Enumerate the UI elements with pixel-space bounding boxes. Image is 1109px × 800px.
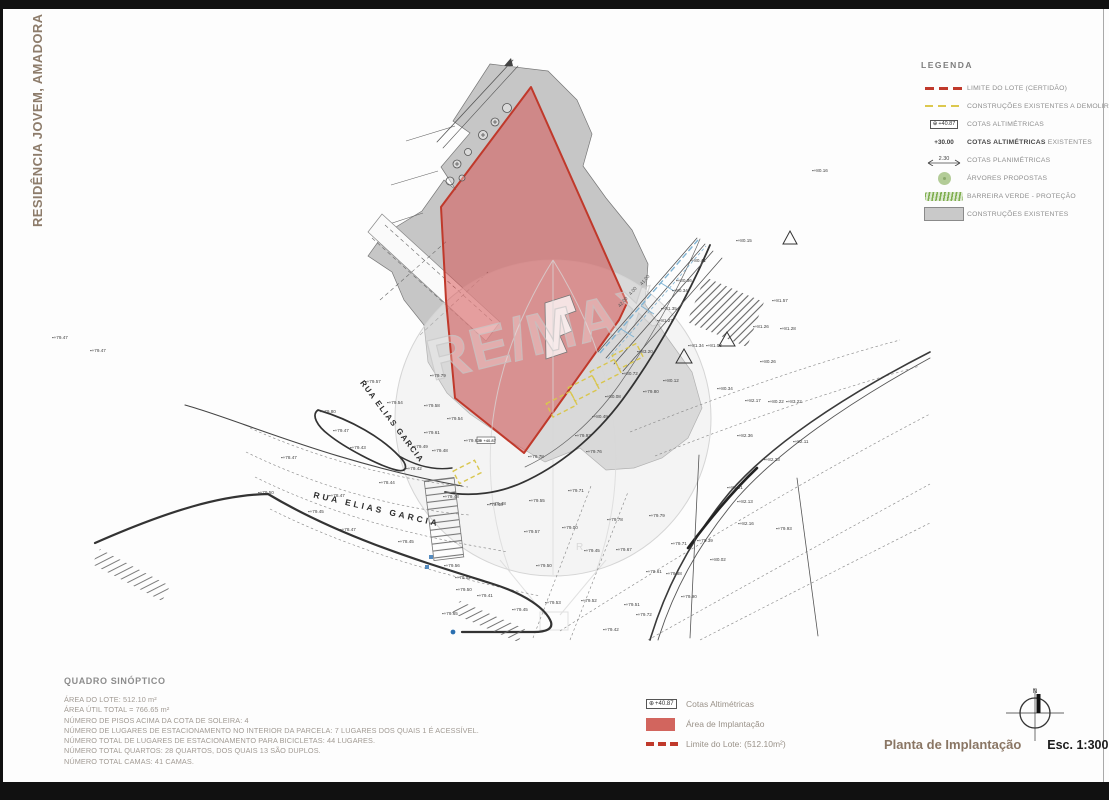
spot-elevation: ▪+79.65: [442, 611, 458, 616]
spot-elevation: ▪+82.36: [737, 433, 753, 438]
spot-elevation: ▪+82.11: [793, 439, 809, 444]
spot-elevation: ▪+79.45: [512, 607, 528, 612]
svg-text:2.30: 2.30: [939, 156, 950, 162]
spot-elevation: ▪+79.48: [490, 501, 506, 506]
spot-elevation: ▪+79.61: [424, 430, 440, 435]
spot-elevation: ▪+81.26: [753, 324, 769, 329]
spot-elevation: ▪+79.55: [529, 498, 545, 503]
spot-elevation: ▪+83.22: [786, 399, 802, 404]
spot-elevation: ▪+79.00: [562, 525, 578, 530]
spot-elevation: ▪+79.80: [643, 389, 659, 394]
spot-elevation: ▪+80.26: [760, 359, 776, 364]
spot-elevation: ▪+79.50: [456, 587, 472, 592]
scale-label: Esc. 1:300: [1047, 738, 1108, 752]
spot-elevation: ▪+79.78: [528, 454, 544, 459]
footer-legend-item-area: Área de Implantação: [646, 714, 786, 734]
spot-elevation: ▪+79.78: [607, 517, 623, 522]
utility-blue-mark: [425, 565, 429, 569]
green-barrier-symbol: [925, 192, 963, 201]
legend-item-demolish: CONSTRUÇÕES EXISTENTES A DEMOLIR: [921, 97, 1099, 115]
drawing-title: Planta de Implantação: [884, 737, 1021, 752]
spot-elevation: ▪+79.52: [455, 575, 471, 580]
spot-elevation: ▪+79.76: [586, 449, 602, 454]
legend-item-planimetric: 2.30 COTAS PLANIMÉTRICAS: [921, 151, 1099, 169]
target-icon: ⊕: [649, 700, 654, 708]
spot-elevation: ▪+82.16: [738, 521, 754, 526]
spot-elevation: ▪+81.35: [661, 306, 677, 311]
red-dash-symbol: [646, 742, 679, 746]
spot-elevation: ▪+80.34: [717, 386, 733, 391]
spot-elevation: ▪+79.92: [575, 433, 591, 438]
utility-blue-mark: [429, 555, 433, 559]
spot-elevation: ▪+80.49: [592, 414, 608, 419]
tree-symbol: [938, 172, 951, 185]
utility-blue-dot: [451, 630, 456, 635]
synoptic-line: NÚMERO TOTAL QUARTOS: 28 QUARTOS, DOS QU…: [64, 746, 534, 756]
spot-elevation: ▪+79.39: [697, 538, 713, 543]
red-fill-symbol: [646, 718, 675, 731]
spot-elevation: ▪+81.34: [688, 343, 704, 348]
spot-elevation: ▪+79.79: [430, 373, 446, 378]
spot-elevation: ▪+79.93: [776, 526, 792, 531]
spot-elevation: ▪+79.42: [603, 627, 619, 632]
spot-elevation: ▪+80.08: [605, 394, 621, 399]
spot-elevation: ▪+82.17: [745, 398, 761, 403]
spot-elevation: ▪+80.34: [672, 288, 688, 293]
spot-elevation: ▪+79.45: [584, 548, 600, 553]
spot-elevation: ▪+79.79: [649, 513, 665, 518]
footer-legend-item-cotas: ⊕+40.87 Cotas Altimétricas: [646, 694, 786, 714]
red-dash-symbol: [925, 87, 963, 90]
spot-elevation: ▪+79.48: [432, 448, 448, 453]
synoptic-table: QUADRO SINÓPTICO ÁREA DO LOTE: 512.10 m²…: [64, 676, 534, 767]
spot-elevation: ▪+79.54: [447, 416, 463, 421]
viewer-bottom-border: [0, 782, 1109, 800]
spot-elevation: ▪+79.42: [406, 466, 422, 471]
spot-elevation: ▪+79.71: [671, 541, 687, 546]
spot-elevation: ▪+80.15: [736, 238, 752, 243]
legend-item-altimetric-existing: +30.00 COTAS ALTIMÉTRICAS EXISTENTES: [921, 133, 1099, 151]
spot-elevation: ▪+79.48: [443, 494, 459, 499]
existing-cota-symbol: +30.00: [934, 139, 953, 146]
project-title-vertical: RESIDÊNCIA JOVEM, AMADORA: [30, 52, 45, 227]
footer-legend: ⊕+40.87 Cotas Altimétricas Área de Impla…: [646, 694, 786, 754]
spot-elevation: ▪+80.22: [768, 399, 784, 404]
spot-elevation: ▪+79.90: [681, 594, 697, 599]
legend-item-existing: CONSTRUÇÕES EXISTENTES: [921, 205, 1099, 223]
legend-item-green-barrier: BARREIRA VERDE - PROTEÇÃO: [921, 187, 1099, 205]
spot-elevation: ▪+81.57: [772, 298, 788, 303]
spot-elevation: ▪+79.47: [333, 428, 349, 433]
spot-elevation: ▪+79.50: [536, 563, 552, 568]
spot-elevation: ▪+80.72: [622, 371, 638, 376]
spot-elevation: ▪+80.36: [676, 278, 692, 283]
gray-box-symbol: [924, 207, 964, 221]
spot-elevation: ▪+79.51: [624, 602, 640, 607]
title-block: Planta de Implantação Esc. 1:300: [884, 737, 1108, 752]
planimetric-symbol: 2.30: [924, 154, 964, 166]
spot-elevation: ▪+80.02: [710, 557, 726, 562]
spot-elevation: ▪+79.56: [444, 563, 460, 568]
spot-elevation: ▪+80.12: [663, 378, 679, 383]
spot-elevation: ▪+79.58: [424, 403, 440, 408]
spot-elevation: ▪+79.43: [350, 445, 366, 450]
spot-elevation: ▪+79.57: [524, 529, 540, 534]
spot-elevation: ▪+79.47: [90, 348, 106, 353]
spot-elevation: ▪+79.88: [666, 571, 682, 576]
spot-elevation: ▪+78.47: [340, 527, 356, 532]
viewer-left-border: [0, 0, 3, 800]
spot-elevation: ▪+83.20: [637, 349, 653, 354]
footer-legend-item-limit: Limite do Lote: (512.10m²): [646, 734, 786, 754]
spot-elevation: ▪+80.16: [812, 168, 828, 173]
spot-elevation: ▪+79.72: [636, 612, 652, 617]
legend-item-lot-limit: LIMITE DO LOTE (CERTIDÃO): [921, 79, 1099, 97]
spot-elevation: ▪+79.80: [320, 409, 336, 414]
cota-box-symbol: ⊕+40.87: [930, 120, 959, 129]
spot-elevation: ▪+79.61: [646, 569, 662, 574]
roadside-hatch: [92, 549, 170, 601]
cota-box-symbol: ⊕+40.87: [646, 699, 677, 709]
spot-elevation: ▪+78.47: [281, 455, 297, 460]
north-tick-arrowhead: [504, 58, 513, 66]
spot-elevation: ▪+79.53: [545, 600, 561, 605]
cota-box-value: ⊕ +40.87: [479, 438, 497, 443]
spot-elevation: ▪+82.13: [737, 499, 753, 504]
spot-elevation: ▪+79.71: [568, 488, 584, 493]
spot-elevation: ▪+79.54: [387, 400, 403, 405]
crosswalk-hatch-upper: [687, 277, 764, 347]
spot-elevation: ▪+81.91: [727, 485, 743, 490]
spot-elevation: ▪+79.52: [581, 598, 597, 603]
watermark-r: R: [576, 542, 583, 553]
spot-elevation: ▪+79.62: [464, 438, 480, 443]
spot-elevation: ▪+81.28: [780, 326, 796, 331]
sheet-right-edge: [1103, 9, 1104, 782]
spot-elevation: ▪+78.45: [398, 539, 414, 544]
spot-elevation: ▪+78.44: [379, 480, 395, 485]
spot-elevation: ▪+79.47: [52, 335, 68, 340]
legend-title: LEGENDA: [921, 60, 1099, 70]
yellow-dash-symbol: [925, 105, 963, 107]
spot-elevation: ▪+80.41: [690, 258, 706, 263]
synoptic-line: ÁREA ÚTIL TOTAL = 766.65 m²: [64, 705, 534, 715]
synoptic-line: ÁREA DO LOTE: 512.10 m²: [64, 695, 534, 705]
synoptic-title: QUADRO SINÓPTICO: [64, 676, 534, 686]
synoptic-line: NÚMERO DE PISOS ACIMA DA COTA DE SOLEIRA…: [64, 716, 534, 726]
spot-elevation: ▪+79.50: [258, 490, 274, 495]
synoptic-line: NÚMERO TOTAL DE LUGARES DE ESTACIONAMENT…: [64, 736, 534, 746]
legend-item-altimetric: ⊕+40.87 COTAS ALTIMÉTRICAS: [921, 115, 1099, 133]
spot-elevation: ▪+82.23: [764, 457, 780, 462]
legend-item-trees: ÁRVORES PROPOSTAS: [921, 169, 1099, 187]
legend-panel: LEGENDA LIMITE DO LOTE (CERTIDÃO) CONSTR…: [921, 60, 1099, 223]
spot-elevation: ▪+81.27: [657, 318, 673, 323]
spot-elevation: ▪+79.41: [477, 593, 493, 598]
target-icon: ⊕: [933, 121, 938, 128]
viewer-top-border: [0, 0, 1109, 9]
synoptic-line: NÚMERO DE LUGARES DE ESTACIONAMENTO NO I…: [64, 726, 534, 736]
spot-elevation: ▪+79.67: [616, 547, 632, 552]
cota-box-marker: ⊕ +40.87: [477, 437, 497, 444]
synoptic-line: NÚMERO TOTAL CAMAS: 41 CAMAS.: [64, 757, 534, 767]
spot-elevation: ▪+79.45: [308, 509, 324, 514]
plan-sheet: RE/MAX R: [0, 0, 1109, 800]
spot-elevation: ▪+81.08: [706, 343, 722, 348]
